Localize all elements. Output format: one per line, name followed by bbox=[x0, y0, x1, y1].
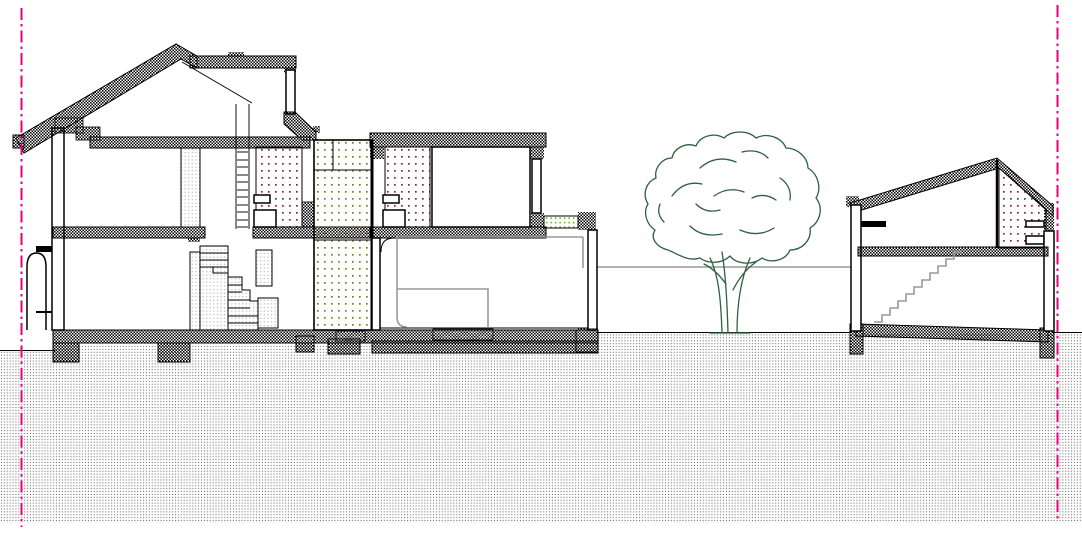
mid-floor-slab bbox=[858, 247, 1048, 256]
main-house bbox=[13, 44, 598, 362]
window-sill bbox=[1026, 221, 1044, 227]
garage-wing bbox=[370, 133, 598, 341]
window-sill bbox=[254, 195, 270, 203]
right-wall bbox=[1044, 231, 1054, 331]
foundation-pier bbox=[1040, 328, 1054, 358]
roof-step bbox=[228, 52, 244, 57]
canopy-bar bbox=[36, 246, 52, 252]
footing-pad bbox=[336, 331, 365, 341]
left-wall bbox=[851, 205, 861, 331]
footing-pad bbox=[433, 329, 493, 340]
newel-wall bbox=[258, 298, 278, 328]
wall-block bbox=[302, 202, 314, 227]
garage-left-wall bbox=[372, 238, 380, 330]
shaft-wall-olive bbox=[314, 140, 372, 330]
window-sill bbox=[383, 195, 399, 203]
section-drawing bbox=[0, 0, 1082, 540]
service-shaft bbox=[314, 140, 372, 330]
garage-end-wall bbox=[588, 230, 597, 330]
stair-wall bbox=[190, 252, 200, 330]
arched-doorway bbox=[27, 253, 46, 330]
ceiling-arc bbox=[381, 238, 394, 252]
stair-line bbox=[874, 252, 962, 322]
roof-cap bbox=[370, 147, 384, 159]
first-floor-slab bbox=[53, 227, 205, 238]
garage-floor-slab bbox=[372, 341, 598, 353]
garage-interior-lines bbox=[397, 237, 583, 327]
window-mullion bbox=[532, 159, 541, 213]
tree-canopy bbox=[645, 132, 820, 263]
duct-recess bbox=[1026, 236, 1044, 244]
attic-ladder bbox=[236, 104, 249, 229]
tree-inner-lines bbox=[659, 151, 791, 235]
stair-flight-upper bbox=[200, 246, 228, 330]
chimney bbox=[181, 148, 200, 227]
green-roof-strip bbox=[544, 216, 578, 228]
upper-flat-roof bbox=[190, 56, 296, 68]
tree-trunk bbox=[704, 252, 756, 333]
duct-recess bbox=[383, 210, 405, 227]
newel-wall bbox=[256, 250, 272, 286]
tree bbox=[645, 132, 820, 333]
clerestory-wall bbox=[286, 70, 295, 114]
parapet-block bbox=[578, 212, 596, 230]
duct-recess bbox=[254, 210, 276, 227]
roof-bracket bbox=[313, 126, 320, 133]
pent-roof bbox=[284, 112, 316, 140]
neighbour-house bbox=[846, 158, 1054, 358]
foundation-pier bbox=[296, 336, 314, 352]
roof-cap bbox=[530, 147, 544, 159]
wall-foot bbox=[578, 328, 598, 341]
right-wall-head bbox=[1044, 203, 1054, 233]
flat-roof bbox=[370, 133, 546, 147]
sill-bar bbox=[861, 221, 886, 227]
foundation-pier bbox=[158, 343, 190, 362]
attic-floor-slab bbox=[90, 137, 310, 148]
staircase bbox=[188, 234, 278, 330]
drawing-svg bbox=[0, 0, 1082, 540]
stair-cap bbox=[188, 234, 200, 242]
foundation-pier bbox=[53, 343, 79, 362]
bedroom bbox=[432, 147, 530, 227]
